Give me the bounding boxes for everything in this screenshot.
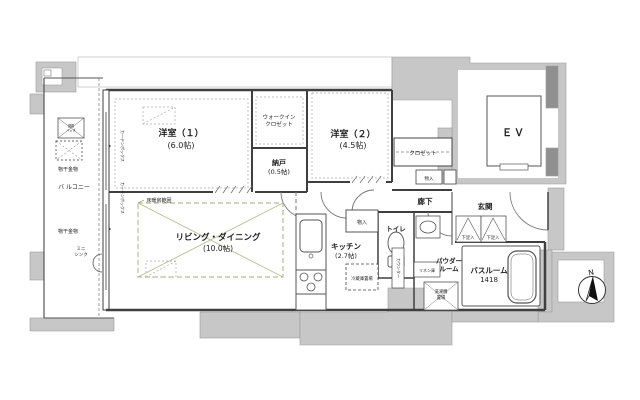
label-hatch-1: 避難 xyxy=(68,123,75,128)
label-powder-2: ルーム xyxy=(439,265,459,273)
ev-rail-block-bottom xyxy=(546,148,558,176)
label-ev: ＥＶ xyxy=(502,127,526,139)
floor-plan-drawing: N 洋室（１） (6.0帖) ウォークイン クロゼット 納戸 (0.5帖) 洋室… xyxy=(0,0,640,400)
bottom-center-band xyxy=(200,312,300,338)
label-curtain-box-1: カーテンボックス xyxy=(120,130,126,162)
label-living: リビング・ダイニング xyxy=(175,232,261,243)
mini-sink-basin xyxy=(93,254,102,272)
label-living-size: (10.0帖) xyxy=(203,243,233,253)
label-nando-size: (0.5帖) xyxy=(268,167,290,176)
label-linen: リネン庫 xyxy=(419,267,435,273)
label-shoebox-1: 下足入 xyxy=(462,235,476,241)
label-counter: カウンター xyxy=(396,258,402,278)
label-closet-monoire: 物入 xyxy=(425,175,434,182)
toilet-door xyxy=(352,190,374,212)
label-entrance: 玄関 xyxy=(478,201,493,211)
bath-fixtures xyxy=(462,246,540,306)
label-bath: バスルーム xyxy=(470,266,508,275)
label-bedroom2-size: (4.5帖) xyxy=(340,140,367,150)
label-shoebox-2: 下足入 xyxy=(487,235,501,241)
bottom-left-band xyxy=(30,318,114,331)
left-wall-nub-top xyxy=(30,94,44,114)
label-fridge: 冷蔵庫置場 xyxy=(351,275,373,282)
label-bedroom2: 洋室（２） xyxy=(330,128,375,140)
sliding-door-hatch xyxy=(215,176,381,193)
label-curtain-box-2: カーテンボックス xyxy=(120,182,126,214)
label-wic-2: クロゼット xyxy=(265,120,293,128)
tl-structure-detail xyxy=(44,70,51,76)
label-corridor: 廊下 xyxy=(418,196,433,206)
label-nando: 納戸 xyxy=(272,158,286,167)
label-kitchen-size: (2.7帖) xyxy=(335,251,357,260)
bath-bottom-wall xyxy=(452,310,538,322)
label-washer-2: 置場 xyxy=(437,294,446,301)
label-bedroom1: 洋室（１） xyxy=(158,127,203,139)
label-monohoshi-1: 物干金物 xyxy=(58,166,78,173)
ev-rail-block-top xyxy=(546,66,558,108)
label-bedroom1-size: (6.0帖) xyxy=(168,140,195,150)
label-wic-1: ウォークイン xyxy=(262,113,296,121)
label-kitchen: キッチン xyxy=(331,242,361,251)
label-minisink-1: ミニ xyxy=(77,246,86,252)
label-washer-1: 洗濯機 xyxy=(435,288,449,295)
label-toilet: トイレ xyxy=(386,225,406,233)
label-balcony: バ ルコニー xyxy=(58,184,90,191)
kitchen-fixtures xyxy=(296,214,326,310)
label-floor-heating: 床暖房範囲 xyxy=(146,197,171,204)
entrance-door xyxy=(510,192,548,230)
label-powder-1: パウダー xyxy=(436,256,462,265)
label-hatch-2: ハッチ xyxy=(66,128,76,133)
left-wall-nub-bottom xyxy=(30,252,44,280)
label-closet2: クロゼット xyxy=(409,149,437,157)
label-hall-monoire: 物入 xyxy=(357,219,367,226)
small-shelf-box xyxy=(444,170,456,184)
floor-plan-page: N 洋室（１） (6.0帖) ウォークイン クロゼット 納戸 (0.5帖) 洋室… xyxy=(0,0,640,400)
entrance-east-wall xyxy=(548,188,564,250)
upper-structure-outline xyxy=(78,57,392,87)
label-minisink-2: シンク xyxy=(74,252,88,258)
label-monohoshi-2: 物干金物 xyxy=(58,228,78,235)
label-bath-size: 1418 xyxy=(480,276,498,284)
